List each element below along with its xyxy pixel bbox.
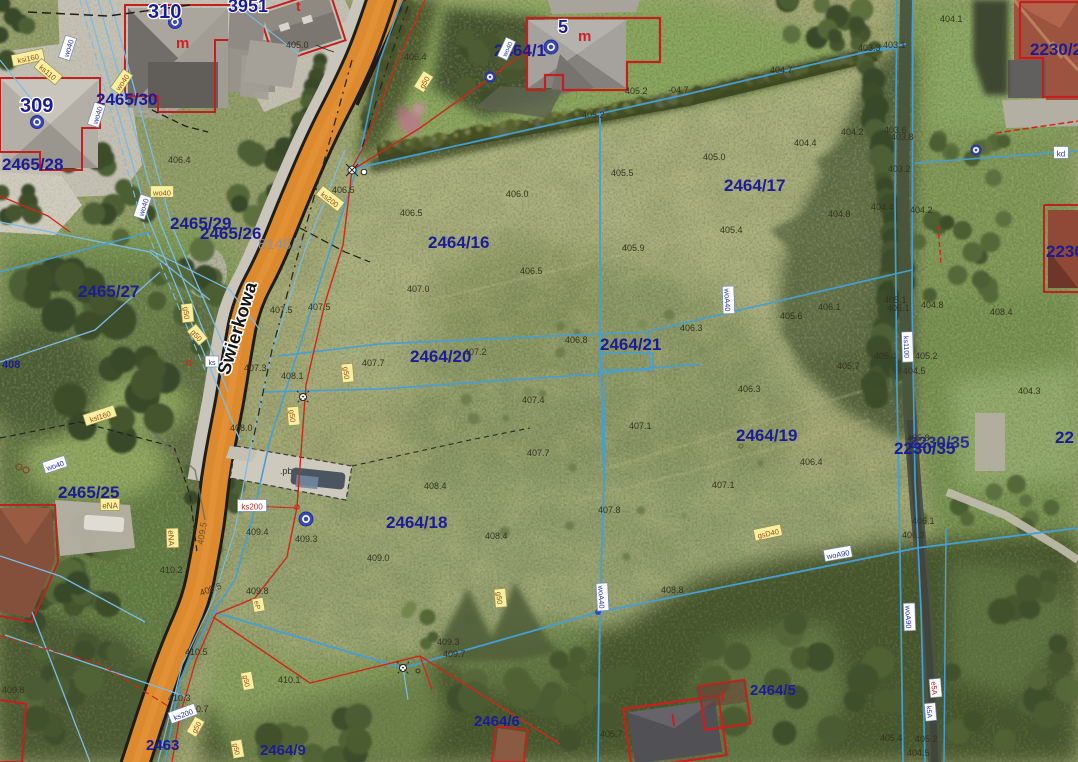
svg-text:406.1: 406.1 — [912, 516, 935, 526]
svg-text:406.0: 406.0 — [506, 189, 529, 199]
svg-text:405.5: 405.5 — [611, 168, 634, 178]
svg-text:403.8: 403.8 — [891, 132, 914, 142]
svg-text:406.5: 406.5 — [332, 185, 355, 195]
svg-text:2464/16: 2464/16 — [428, 233, 489, 252]
svg-text:2230/2: 2230/2 — [1030, 40, 1078, 59]
svg-text:408.0: 408.0 — [230, 423, 253, 433]
svg-text:2465/27: 2465/27 — [78, 282, 139, 301]
svg-text:405.7: 405.7 — [837, 361, 860, 371]
svg-text:404.7: 404.7 — [770, 65, 793, 75]
svg-text:404.1: 404.1 — [940, 14, 963, 24]
svg-text:409.8: 409.8 — [2, 685, 25, 695]
svg-text:406.4: 406.4 — [168, 155, 191, 165]
svg-text:-04.7: -04.7 — [668, 85, 689, 95]
svg-text:409.8: 409.8 — [246, 586, 269, 596]
svg-text:ks200: ks200 — [241, 503, 263, 512]
svg-text:406.3: 406.3 — [902, 530, 925, 540]
svg-text:2464/21: 2464/21 — [600, 335, 661, 354]
svg-text:409.0: 409.0 — [367, 553, 390, 563]
svg-text:2464/9: 2464/9 — [260, 742, 306, 759]
svg-text:2464/5: 2464/5 — [750, 682, 796, 699]
svg-text:woA90: woA90 — [903, 604, 913, 628]
svg-text:409.3: 409.3 — [295, 534, 318, 544]
svg-text:407.1: 407.1 — [629, 421, 652, 431]
svg-text:407.3: 407.3 — [244, 363, 267, 373]
svg-text:405.2: 405.2 — [582, 110, 605, 120]
svg-text:405.2: 405.2 — [625, 86, 648, 96]
svg-text:310: 310 — [148, 1, 181, 23]
svg-text:404.8: 404.8 — [921, 300, 944, 310]
svg-text:409.3: 409.3 — [437, 637, 460, 647]
svg-text:k5A: k5A — [924, 706, 932, 719]
svg-text:407.5: 407.5 — [270, 305, 293, 315]
svg-text:3951: 3951 — [228, 0, 268, 16]
svg-text:.pb: .pb — [280, 466, 293, 476]
svg-text:t: t — [296, 0, 301, 14]
svg-text:8148/2: 8148/2 — [258, 236, 304, 253]
svg-text:410.1: 410.1 — [278, 675, 301, 685]
svg-text:2464/17: 2464/17 — [724, 176, 785, 195]
svg-text:405.6: 405.6 — [780, 311, 803, 321]
svg-text:407.7: 407.7 — [362, 358, 385, 368]
svg-text:406.3: 406.3 — [738, 384, 761, 394]
svg-text:406.4: 406.4 — [800, 457, 823, 467]
svg-text:405.7: 405.7 — [600, 729, 623, 739]
svg-text:407.5: 407.5 — [308, 302, 331, 312]
svg-text:405.4: 405.4 — [720, 225, 743, 235]
svg-text:g50: g50 — [341, 366, 351, 379]
svg-text:e5A: e5A — [929, 681, 939, 695]
svg-text:22: 22 — [1055, 428, 1074, 447]
svg-text:405.4: 405.4 — [880, 733, 903, 743]
svg-text:407.0: 407.0 — [407, 284, 430, 294]
svg-text:410.5: 410.5 — [185, 647, 208, 657]
svg-text:404.4: 404.4 — [871, 202, 894, 212]
svg-text:404.3: 404.3 — [1018, 386, 1041, 396]
svg-text:407.2: 407.2 — [464, 347, 487, 357]
svg-text:404.5: 404.5 — [903, 366, 926, 376]
svg-text:405.1: 405.1 — [887, 303, 910, 313]
svg-text:eNA: eNA — [166, 530, 176, 547]
svg-text:404.2: 404.2 — [841, 127, 864, 137]
svg-text:2465/28: 2465/28 — [2, 155, 63, 174]
svg-text:409.4: 409.4 — [246, 527, 269, 537]
svg-text:405.0: 405.0 — [703, 152, 726, 162]
svg-text:409.7: 409.7 — [443, 649, 466, 659]
svg-text:408.4: 408.4 — [424, 481, 447, 491]
svg-text:405.4: 405.4 — [404, 52, 427, 62]
svg-text:2465/26: 2465/26 — [200, 224, 261, 243]
svg-text:407.4: 407.4 — [522, 395, 545, 405]
svg-text:410.3: 410.3 — [168, 693, 191, 703]
svg-text:2464/6: 2464/6 — [474, 713, 520, 730]
svg-text:410.2: 410.2 — [160, 565, 183, 575]
svg-text:kd: kd — [1057, 150, 1065, 159]
svg-text:g50: g50 — [181, 306, 191, 319]
svg-text:405.2: 405.2 — [915, 734, 938, 744]
svg-text:404.2: 404.2 — [910, 205, 933, 215]
svg-text:405.9: 405.9 — [622, 243, 645, 253]
svg-text:405.8: 405.8 — [907, 433, 930, 443]
svg-text:405.0: 405.0 — [286, 40, 309, 50]
svg-text:407.7: 407.7 — [527, 448, 550, 458]
svg-text:m: m — [578, 28, 591, 45]
svg-text:woA40: woA40 — [722, 287, 732, 311]
svg-text:g50: g50 — [494, 591, 504, 604]
svg-text:404.8: 404.8 — [828, 209, 851, 219]
svg-text:408.4: 408.4 — [485, 531, 508, 541]
svg-text:405.4: 405.4 — [874, 351, 897, 361]
svg-text:404.5: 404.5 — [907, 748, 930, 758]
svg-text:407.1: 407.1 — [712, 480, 735, 490]
svg-text:5: 5 — [558, 17, 568, 37]
svg-text:eNA: eNA — [102, 502, 118, 511]
svg-text:403.2: 403.2 — [888, 164, 911, 174]
svg-text:g50: g50 — [287, 409, 297, 422]
svg-text:2463: 2463 — [146, 737, 179, 754]
svg-text:2464/20: 2464/20 — [410, 347, 471, 366]
svg-text:408.8: 408.8 — [661, 585, 684, 595]
svg-text:m: m — [176, 35, 189, 52]
svg-text:406.5: 406.5 — [520, 266, 543, 276]
svg-text:wo40: wo40 — [152, 188, 171, 197]
svg-text:404.4: 404.4 — [794, 138, 817, 148]
svg-text:309: 309 — [20, 95, 53, 117]
svg-text:2464/18: 2464/18 — [386, 513, 447, 532]
svg-text:2464/19: 2464/19 — [736, 426, 797, 445]
svg-text:406.8: 406.8 — [565, 335, 588, 345]
svg-text:woA40: woA40 — [596, 584, 606, 608]
svg-text:406.3: 406.3 — [680, 323, 703, 333]
svg-text:405.2: 405.2 — [915, 351, 938, 361]
svg-text:403.1: 403.1 — [883, 40, 906, 50]
svg-text:ks: ks — [209, 360, 217, 367]
svg-text:408.4: 408.4 — [990, 307, 1013, 317]
svg-text:406.5: 406.5 — [400, 208, 423, 218]
svg-text:407.8: 407.8 — [598, 505, 621, 515]
svg-text:408: 408 — [2, 359, 20, 371]
svg-text:406.1: 406.1 — [818, 302, 841, 312]
svg-text:ks1100: ks1100 — [902, 336, 910, 358]
svg-text:403.3: 403.3 — [858, 43, 881, 53]
svg-text:408.1: 408.1 — [281, 371, 304, 381]
svg-text:2230: 2230 — [1046, 242, 1078, 261]
